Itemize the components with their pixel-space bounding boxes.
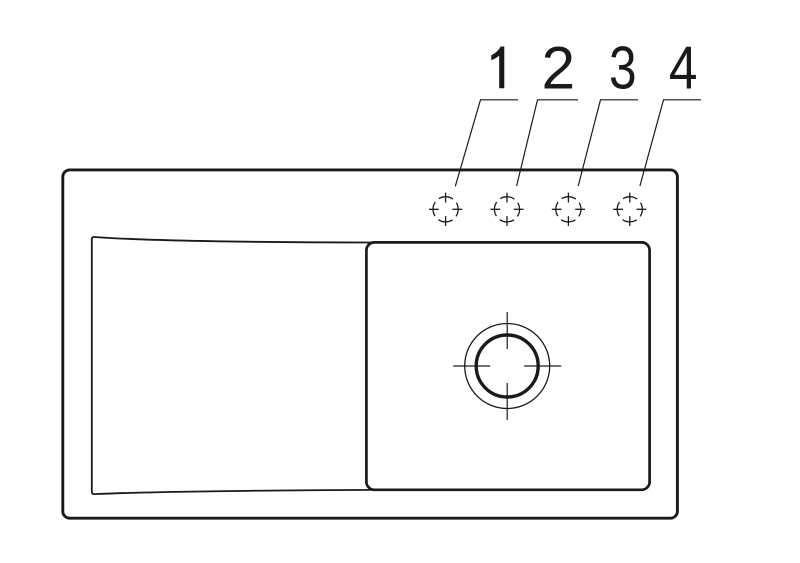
svg-text:4: 4 (669, 33, 698, 101)
svg-text:3: 3 (609, 34, 637, 102)
svg-text:2: 2 (541, 33, 575, 101)
